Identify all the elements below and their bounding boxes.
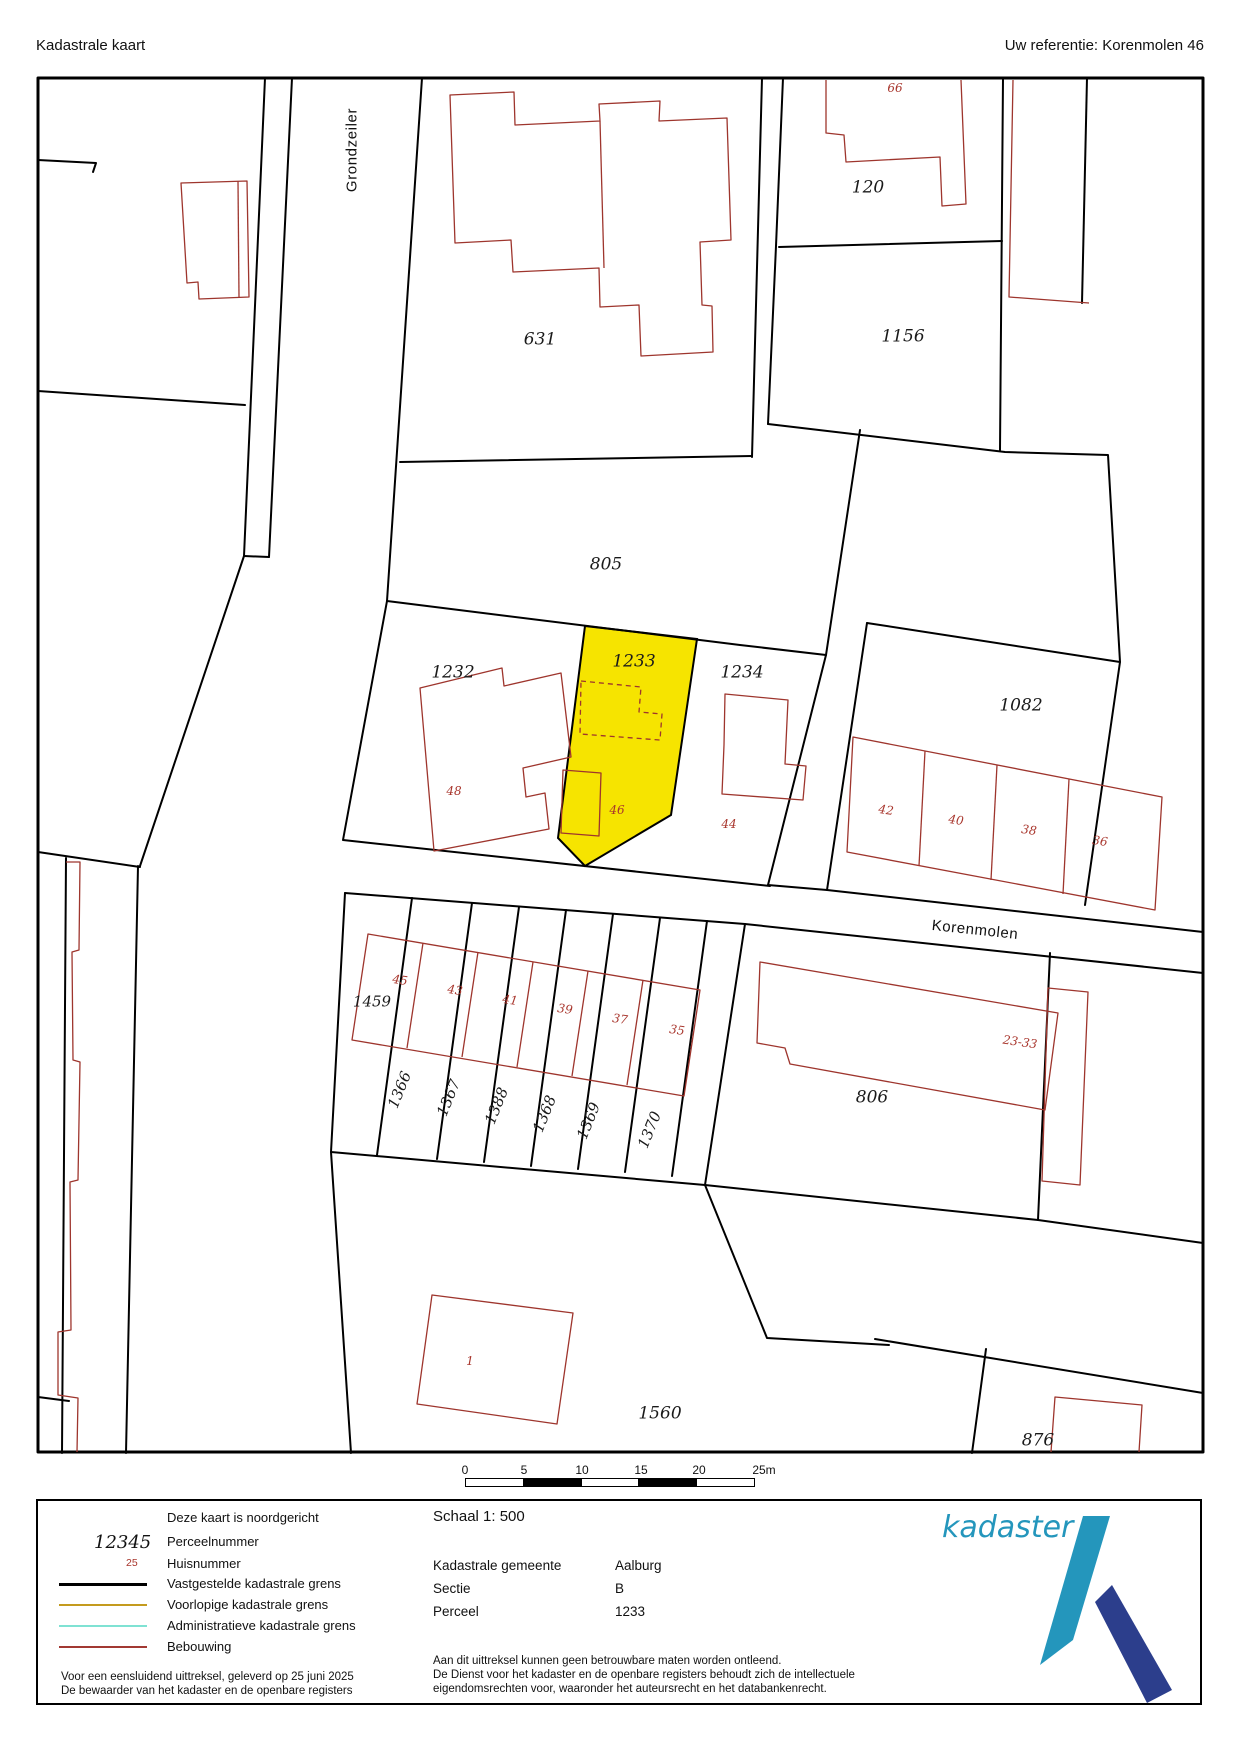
house-number: 39 xyxy=(557,1002,574,1016)
house-number-highlighted: 46 xyxy=(609,804,624,816)
info-row-label: Kadastrale gemeente xyxy=(433,1558,561,1573)
house-number: 44 xyxy=(721,818,736,830)
disclaimer-line: eigendomsrechten voor, waaronder het aut… xyxy=(433,1683,827,1695)
scale-tick: 20 xyxy=(692,1463,705,1477)
info-row-value: Aalburg xyxy=(615,1558,662,1573)
house-number: 42 xyxy=(878,803,895,817)
parcel-label: 1234 xyxy=(720,665,763,682)
kadastrale-kaart-page: Kadastrale kaart Uw referentie: Korenmol… xyxy=(0,0,1240,1755)
house-number: 36 xyxy=(1092,834,1109,848)
scale-tick: 0 xyxy=(462,1463,469,1477)
house-number: 66 xyxy=(887,82,902,94)
parcel-label: 120 xyxy=(852,180,884,197)
legend-line-label: Administratieve kadastrale grens xyxy=(167,1618,356,1633)
map-linework xyxy=(0,0,1240,1755)
parcel-label-highlighted: 1233 xyxy=(612,654,655,671)
scale-label: Schaal 1: 500 xyxy=(433,1508,525,1525)
house-number: 1 xyxy=(466,1355,474,1367)
house-number: 40 xyxy=(948,813,965,827)
info-row-value: 1233 xyxy=(615,1604,645,1619)
huisnummer-sample: 25 xyxy=(126,1557,138,1569)
perceelnummer-label: Perceelnummer xyxy=(167,1534,259,1549)
legend-footer-1: Voor een eensluidend uittreksel, gelever… xyxy=(61,1671,354,1683)
house-number: 48 xyxy=(446,785,461,797)
huisnummer-label: Huisnummer xyxy=(167,1556,241,1571)
parcel-label: 1156 xyxy=(881,329,924,346)
disclaimer-line: Aan dit uittreksel kunnen geen betrouwba… xyxy=(433,1655,781,1667)
perceelnummer-sample: 12345 xyxy=(94,1532,151,1553)
line-sample-voorlopig xyxy=(59,1604,147,1606)
scale-tick: 25m xyxy=(752,1463,775,1477)
info-row-label: Sectie xyxy=(433,1581,471,1596)
legend-line-label: Voorlopige kadastrale grens xyxy=(167,1597,328,1612)
scale-tick: 15 xyxy=(634,1463,647,1477)
disclaimer-line: De Dienst voor het kadaster en de openba… xyxy=(433,1669,855,1681)
legend-line-label: Bebouwing xyxy=(167,1639,231,1654)
parcel-label: 631 xyxy=(524,332,556,349)
scale-tick: 5 xyxy=(521,1463,528,1477)
line-sample-vastgesteld xyxy=(59,1583,147,1586)
street-label-grondzeiler: Grondzeiler xyxy=(345,108,360,192)
north-note: Deze kaart is noordgericht xyxy=(167,1510,319,1525)
legend-line-label: Vastgestelde kadastrale grens xyxy=(167,1576,341,1591)
house-number: 38 xyxy=(1021,823,1038,837)
line-sample-bebouwing xyxy=(59,1646,147,1648)
legend-footer-2: De bewaarder van het kadaster en de open… xyxy=(61,1685,353,1697)
parcel-label: 806 xyxy=(856,1090,888,1107)
house-number: 45 xyxy=(392,973,409,987)
parcel-label: 1232 xyxy=(431,665,474,682)
parcel-label: 1082 xyxy=(999,698,1042,715)
parcel-label: 876 xyxy=(1022,1433,1054,1450)
parcel-label: 805 xyxy=(590,557,622,574)
kadaster-logo-text: kadaster xyxy=(942,1510,1073,1545)
house-number: 41 xyxy=(502,993,519,1007)
info-row-label: Perceel xyxy=(433,1604,479,1619)
house-number: 43 xyxy=(447,983,464,997)
info-row-value: B xyxy=(615,1581,624,1596)
line-sample-administratief xyxy=(59,1625,147,1627)
parcel-label: 1459 xyxy=(353,995,391,1010)
scale-tick: 10 xyxy=(575,1463,588,1477)
house-number: 35 xyxy=(669,1023,686,1037)
parcel-label: 1560 xyxy=(638,1406,681,1423)
scale-bar-segments xyxy=(465,1478,759,1487)
house-number: 37 xyxy=(612,1012,629,1026)
